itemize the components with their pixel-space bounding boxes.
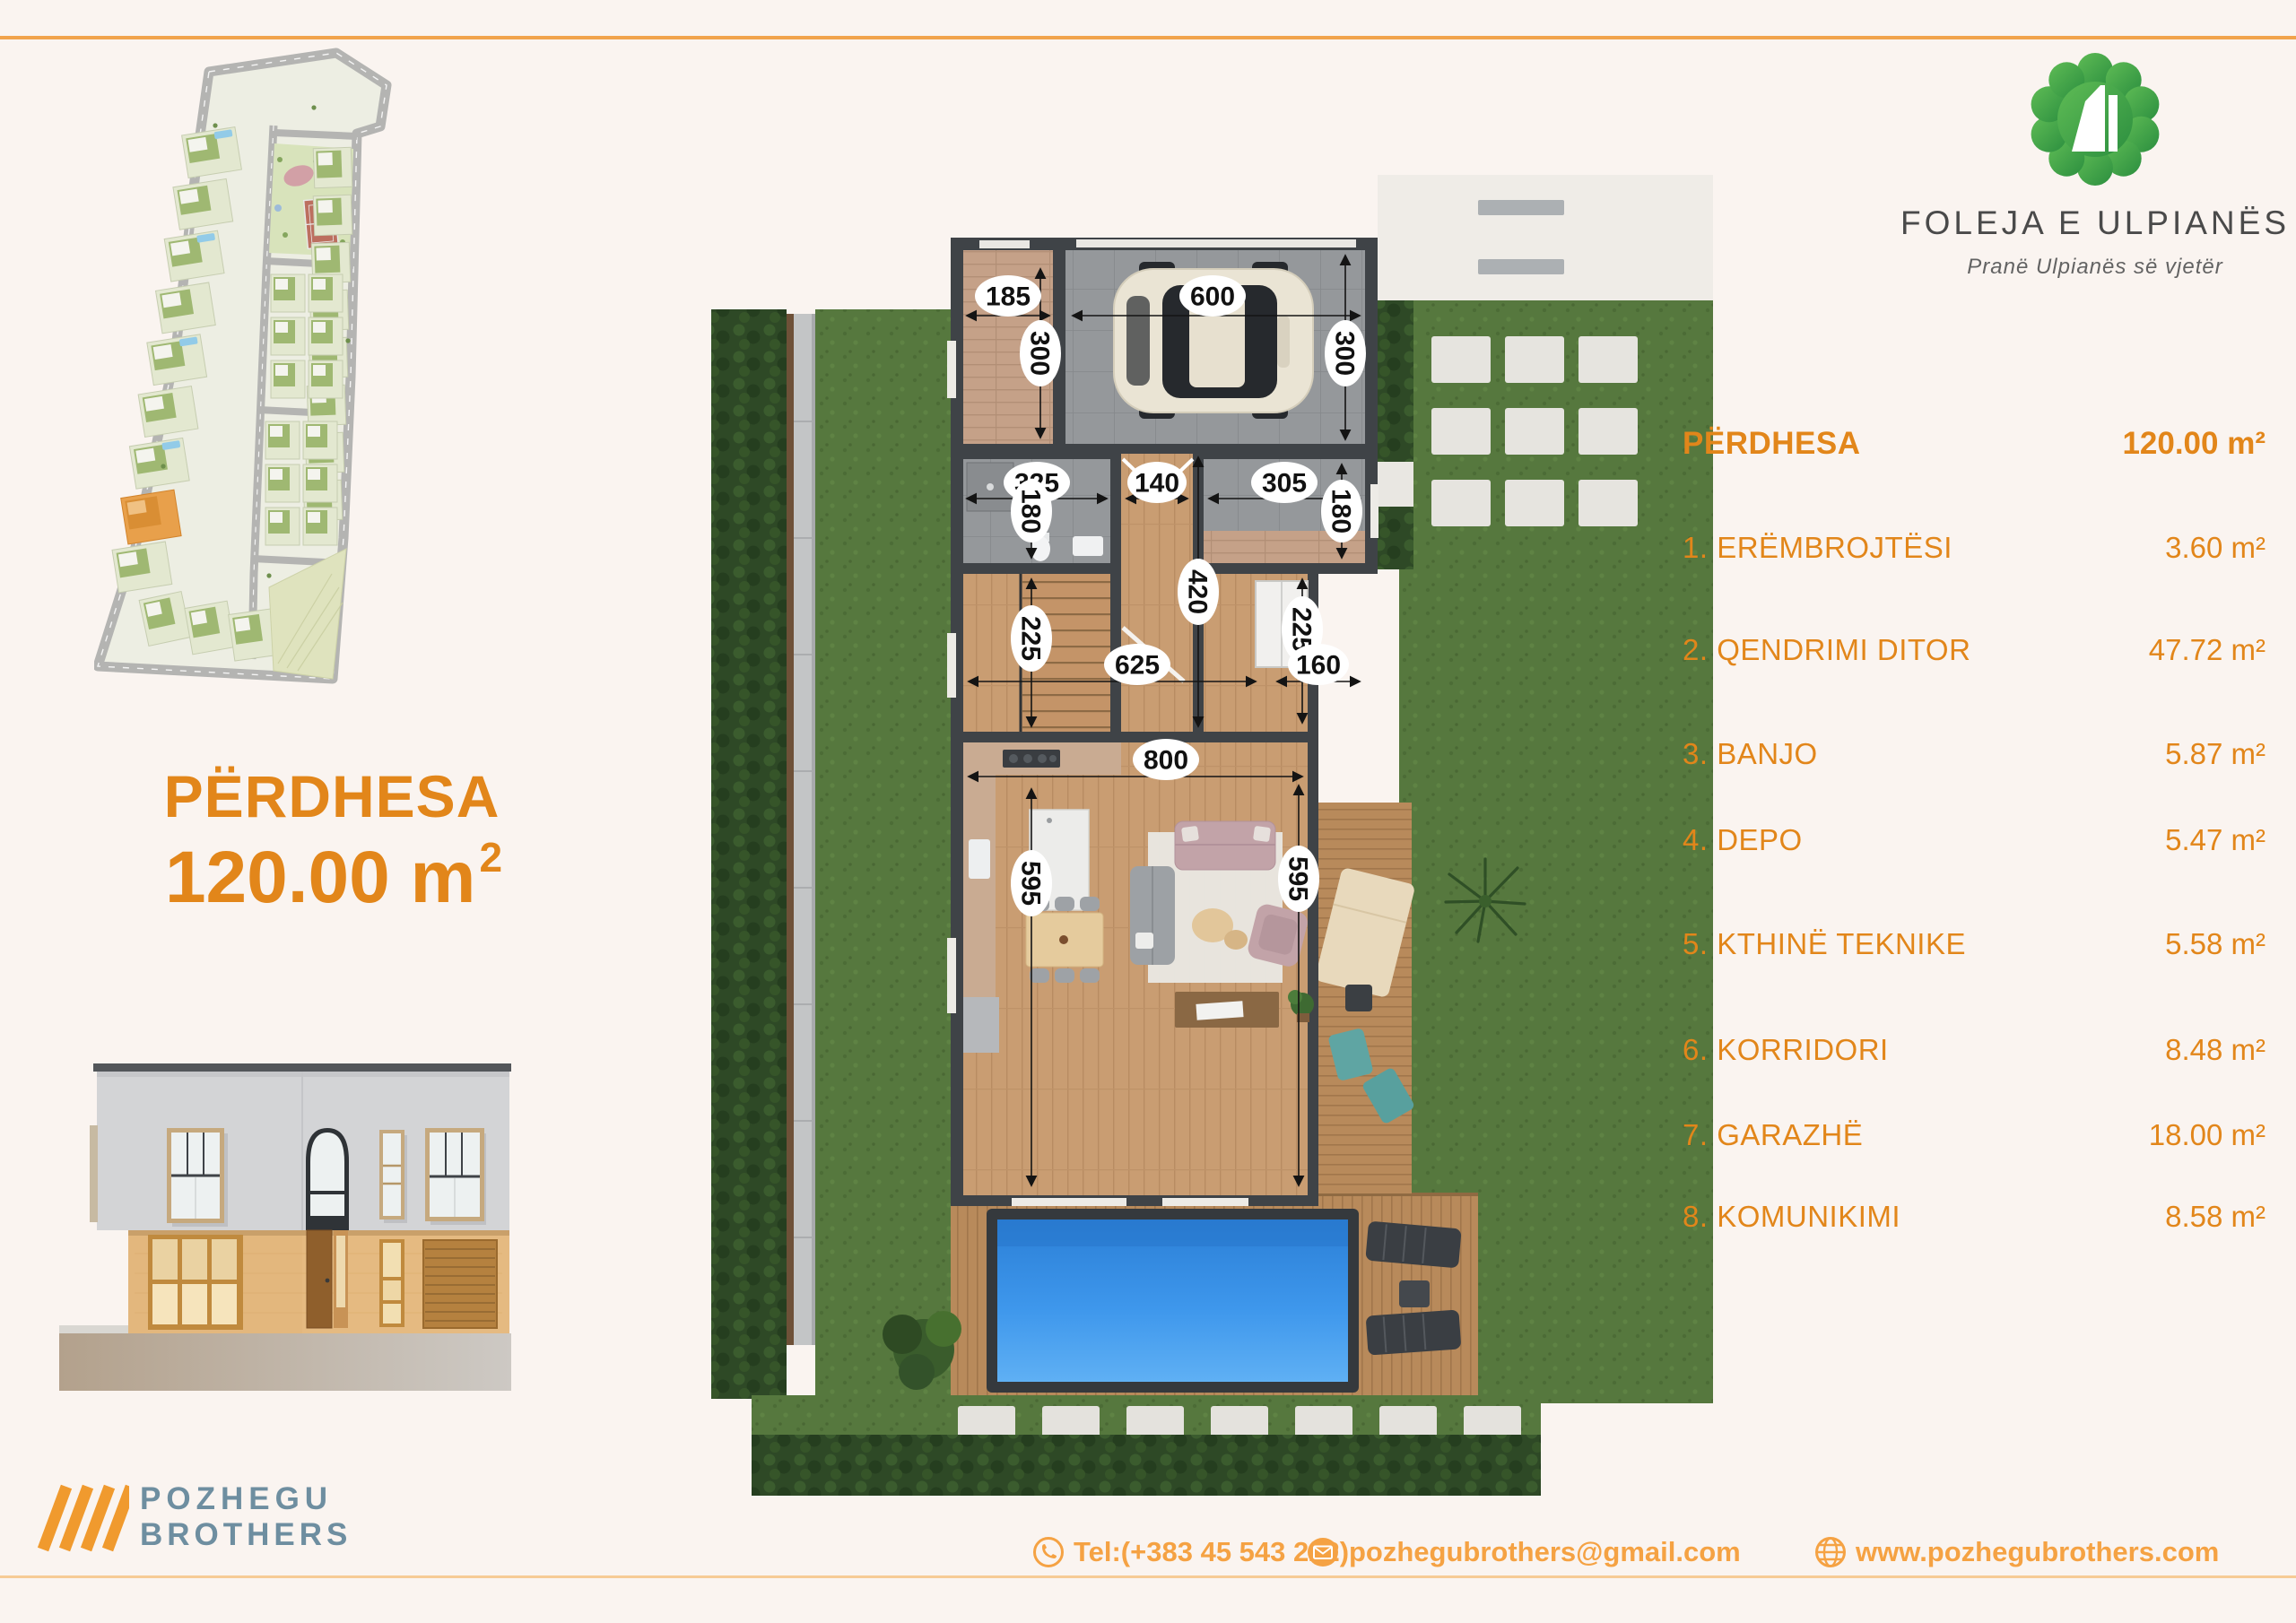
swimming-pool: [987, 1209, 1359, 1393]
room-area: 5.58 m²: [2165, 927, 2266, 961]
floor-area: 120.00 m2: [94, 836, 570, 920]
globe-icon: [1813, 1535, 1848, 1569]
upper-window-right: [425, 1128, 484, 1221]
arched-window: [306, 1128, 349, 1230]
dim-label-600: 600: [1190, 282, 1235, 312]
floor-name: PËRDHESA: [94, 762, 570, 830]
table-row: 1. ERËMBROJTËSI 3.60 m²: [1683, 531, 2266, 565]
dim-label-180-right: 180: [1326, 489, 1356, 534]
pozhegu-wordmark: POZHEGU BROTHERS: [140, 1481, 352, 1553]
brochure-page: { "page": { "background": "#FAF4F0", "to…: [0, 0, 2296, 1623]
table-header-row: PËRDHESA 120.00 m²: [1683, 426, 2266, 462]
garage-door: [423, 1240, 497, 1328]
room-area: 3.60 m²: [2165, 531, 2266, 565]
dim-label-300-right: 300: [1330, 331, 1360, 376]
table-row: 4. DEPO 5.47 m²: [1683, 823, 2266, 857]
room-qendrimi-ditor: [963, 742, 1314, 1195]
upper-window-narrow: [379, 1130, 404, 1219]
table-row: 8. KOMUNIKIMI 8.58 m²: [1683, 1200, 2266, 1234]
dim-label-420: 420: [1183, 569, 1213, 614]
room-label: 6. KORRIDORI: [1683, 1033, 1889, 1067]
pozhegu-brothers-logo: POZHEGU BROTHERS: [36, 1481, 352, 1553]
ground-window-narrow: [379, 1239, 404, 1327]
stepping-stones: [1431, 336, 1638, 526]
dim-label-185: 185: [986, 282, 1031, 312]
contact-phone: Tel:(+383 45 543 222): [1031, 1535, 1349, 1569]
room-label: 2. QENDRIMI DITOR: [1683, 633, 1970, 667]
upper-window-left: [167, 1128, 224, 1223]
room-area: 8.48 m²: [2165, 1033, 2266, 1067]
dim-label-140: 140: [1135, 469, 1179, 499]
room-label: 3. BANJO: [1683, 737, 1818, 771]
table-row: 3. BANJO 5.87 m²: [1683, 737, 2266, 771]
email-icon: [1305, 1535, 1341, 1569]
dim-label-595-right: 595: [1283, 856, 1313, 901]
floor-title: PËRDHESA 120.00 m2: [94, 762, 570, 920]
table-row: 2. QENDRIMI DITOR 47.72 m²: [1683, 633, 2266, 667]
phone-icon: [1031, 1535, 1065, 1569]
dim-label-800: 800: [1144, 746, 1188, 776]
elevation-drawing: [54, 1058, 520, 1480]
dim-label-180-left: 180: [1016, 489, 1046, 534]
room-area: 18.00 m²: [2149, 1118, 2266, 1152]
contact-website: www.pozhegubrothers.com: [1813, 1535, 2219, 1569]
table-header-value: 120.00 m²: [2122, 426, 2266, 462]
entry-door: [307, 1230, 348, 1328]
hedge-bottom: [752, 1435, 1541, 1496]
table-row: 5. KTHINË TEKNIKE 5.58 m²: [1683, 927, 2266, 961]
dim-label-305: 305: [1262, 469, 1307, 499]
table-header-label: PËRDHESA: [1683, 426, 1860, 462]
footer-accent-line: [0, 1575, 2296, 1578]
room-label: 8. KOMUNIKIMI: [1683, 1200, 1900, 1234]
ground-glazing: [148, 1235, 243, 1330]
area-table: PËRDHESA 120.00 m² 1. ERËMBROJTËSI 3.60 …: [1683, 0, 2266, 1345]
room-label: 7. GARAZHË: [1683, 1118, 1863, 1152]
room-label: 1. ERËMBROJTËSI: [1683, 531, 1952, 565]
room-area: 5.87 m²: [2165, 737, 2266, 771]
dim-label-595-left: 595: [1016, 861, 1046, 906]
room-area: 8.58 m²: [2165, 1200, 2266, 1234]
dim-label-225-left: 225: [1016, 616, 1046, 661]
dim-label-625: 625: [1115, 651, 1160, 681]
site-plan-map: [94, 45, 623, 690]
walkway: [1378, 175, 1713, 300]
pozhegu-slashes-icon: [36, 1481, 129, 1553]
dim-label-300-left: 300: [1025, 331, 1055, 376]
room-area: 47.72 m²: [2149, 633, 2266, 667]
room-label: 4. DEPO: [1683, 823, 1803, 857]
hedge-left: [711, 309, 787, 1399]
dim-label-160: 160: [1296, 651, 1341, 681]
table-row: 7. GARAZHË 18.00 m²: [1683, 1118, 2266, 1152]
floor-plan-render: 185 600 300 300 325 140 305 180 180 420 …: [709, 126, 1713, 1497]
room-label: 5. KTHINË TEKNIKE: [1683, 927, 1966, 961]
terrace-deck: [1315, 803, 1416, 1193]
site-highlighted-lot: [121, 490, 181, 544]
contact-email: pozhegubrothers@gmail.com: [1305, 1535, 1741, 1569]
table-row: 6. KORRIDORI 8.48 m²: [1683, 1033, 2266, 1067]
room-area: 5.47 m²: [2165, 823, 2266, 857]
